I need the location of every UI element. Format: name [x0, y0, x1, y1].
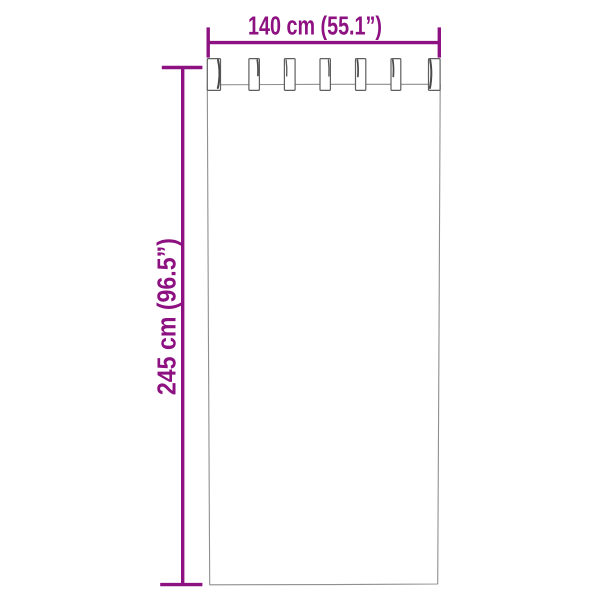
svg-text:245 cm (96.5”): 245 cm (96.5”)	[154, 238, 182, 395]
svg-text:140 cm (55.1”): 140 cm (55.1”)	[248, 13, 382, 41]
